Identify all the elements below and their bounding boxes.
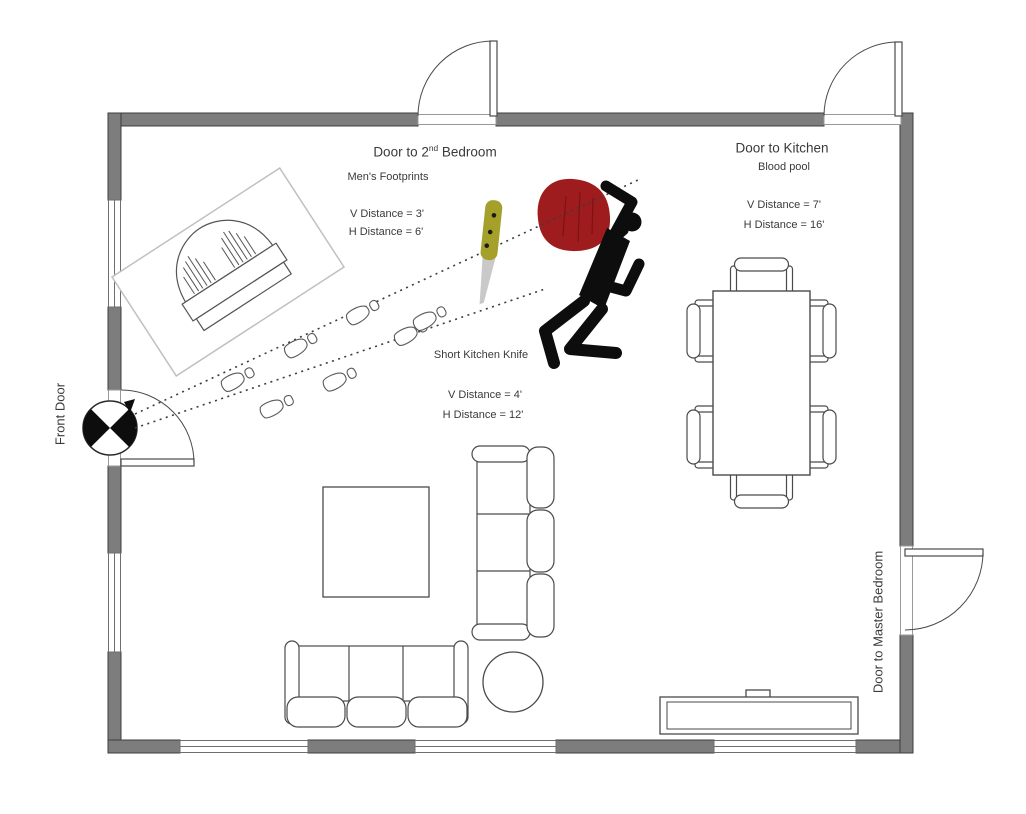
crime-scene-floorplan: Door to 2nd Bedroom Men's Footprints V D… [0, 0, 1026, 814]
label-blood-h-distance: H Distance = 16' [744, 219, 825, 231]
label-front-door: Front Door [53, 383, 68, 445]
large-sofa [472, 446, 554, 640]
round-side-table [483, 652, 543, 712]
label-mens-footprints: Men's Footprints [348, 171, 429, 183]
door-kitchen-threshold [824, 115, 901, 125]
small-sofa [285, 641, 468, 727]
tv-console [660, 690, 858, 734]
door-2nd-bedroom-swing-arc [418, 41, 493, 116]
door-kitchen-swing-arc [824, 42, 898, 116]
door-master-bedroom [901, 546, 984, 635]
door-master-swing-arc [905, 552, 983, 630]
label-footprints-h-distance: H Distance = 6' [349, 226, 424, 238]
door-2nd-bedroom-threshold [418, 115, 496, 125]
label-knife-h-distance: H Distance = 12' [443, 409, 524, 421]
label-door-kitchen: Door to Kitchen [735, 141, 828, 156]
label-door-2nd-bedroom: Door to 2nd Bedroom [373, 143, 496, 160]
dining-table [713, 291, 810, 475]
label-knife-v-distance: V Distance = 4' [448, 389, 522, 401]
door-kitchen [824, 42, 902, 125]
label-short-kitchen-knife: Short Kitchen Knife [434, 349, 528, 361]
door-kitchen-leaf [895, 42, 902, 116]
door-master-threshold [901, 546, 913, 635]
label-door-master-bedroom: Door to Master Bedroom [871, 551, 886, 693]
label-footprints-v-distance: V Distance = 3' [350, 208, 424, 220]
label-blood-pool: Blood pool [758, 161, 810, 173]
door-2nd-bedroom [418, 41, 497, 125]
front-door-leaf [121, 459, 194, 466]
blood-pool [538, 179, 610, 251]
front-door-marker-icon [83, 399, 137, 455]
label-blood-v-distance: V Distance = 7' [747, 199, 821, 211]
door-master-leaf [905, 549, 983, 556]
coffee-table [323, 487, 429, 597]
door-2nd-bedroom-leaf [490, 41, 497, 116]
